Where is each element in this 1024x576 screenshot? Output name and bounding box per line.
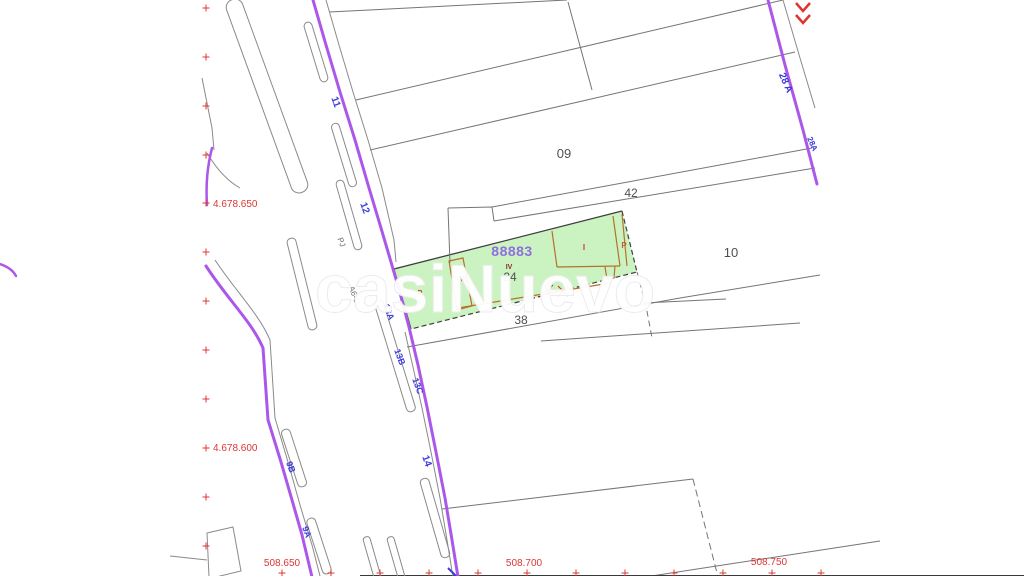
grid-cross	[203, 200, 210, 207]
grid-cross	[328, 570, 335, 576]
grid-cross	[203, 298, 210, 305]
grid-cross	[203, 249, 210, 256]
grid-cross	[203, 54, 210, 61]
street-number: 9B	[284, 460, 298, 475]
utm-coordinate: 4.678.600	[213, 443, 258, 454]
utm-coordinate: 4.678.650	[213, 199, 258, 210]
utm-coordinate: 508.700	[506, 558, 543, 569]
parcel-number: 42	[624, 186, 638, 200]
utm-coordinate: 508.750	[751, 557, 788, 568]
one-way-arrow-icon	[796, 3, 810, 23]
parcel-number: 10	[724, 245, 738, 260]
street-number: 28 A	[776, 71, 794, 94]
grid-cross	[203, 5, 210, 12]
street-number: 14	[419, 454, 433, 469]
watermark-text: casiNuevo	[315, 251, 655, 327]
grid-cross	[279, 570, 286, 576]
left-road-curve-upper	[207, 148, 212, 205]
grid-cross	[203, 347, 210, 354]
parcel-number: 09	[557, 146, 571, 161]
right-road-line	[768, 0, 817, 184]
way-name: PJ	[336, 236, 348, 248]
grid-cross	[203, 396, 210, 403]
street-number: 11	[328, 95, 342, 109]
utm-coordinate: 508.650	[264, 558, 301, 569]
edge-road-arc	[0, 264, 16, 276]
grid-cross	[203, 494, 210, 501]
cadastral-map-page: 4.678.6504.678.600508.650508.700508.750 …	[0, 0, 1024, 576]
use-code: P	[621, 241, 627, 250]
cadastral-map-svg: 4.678.6504.678.600508.650508.700508.750 …	[0, 0, 1024, 576]
grid-cross	[203, 543, 210, 550]
grid-cross	[203, 445, 210, 452]
street-number: 12	[357, 201, 371, 216]
street-number: 13B	[392, 348, 407, 367]
grid-cross	[203, 152, 210, 159]
